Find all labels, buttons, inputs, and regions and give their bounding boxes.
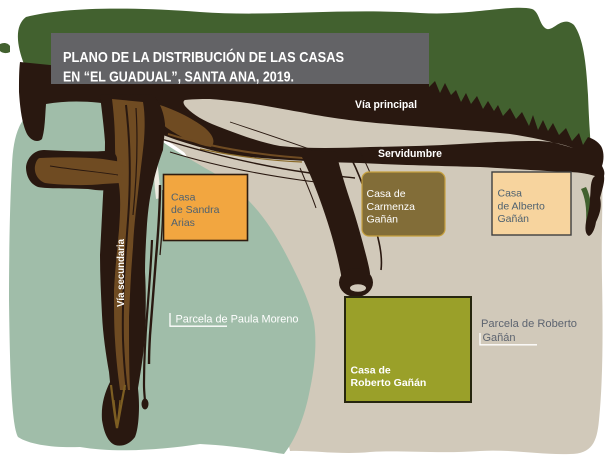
svg-text:Servidumbre: Servidumbre <box>378 148 442 160</box>
svg-text:Casa: Casa <box>498 188 523 200</box>
svg-text:EN “EL GUADUAL”, SANTA ANA, 20: EN “EL GUADUAL”, SANTA ANA, 2019. <box>63 69 294 86</box>
svg-text:Casa de: Casa de <box>367 188 406 200</box>
svg-text:Carmenza: Carmenza <box>367 201 416 213</box>
svg-text:Parcela de Paula Moreno: Parcela de Paula Moreno <box>176 314 299 326</box>
svg-text:Arias: Arias <box>171 217 195 229</box>
svg-text:Gañán: Gañán <box>498 213 530 225</box>
svg-text:Roberto Gañán: Roberto Gañán <box>351 377 427 389</box>
svg-text:Gañán: Gañán <box>483 332 516 344</box>
svg-text:Gañán: Gañán <box>367 214 399 226</box>
svg-text:Casa: Casa <box>171 192 196 204</box>
svg-text:de Sandra: de Sandra <box>171 204 220 216</box>
svg-text:de Alberto: de Alberto <box>498 200 545 212</box>
svg-text:Casa de: Casa de <box>351 365 391 377</box>
svg-text:Vía secundaria: Vía secundaria <box>115 239 127 307</box>
svg-text:PLANO DE LA DISTRIBUCIÓN DE LA: PLANO DE LA DISTRIBUCIÓN DE LAS CASAS <box>63 48 344 66</box>
svg-text:Vía principal: Vía principal <box>355 99 417 111</box>
svg-text:Parcela de Roberto: Parcela de Roberto <box>481 318 577 330</box>
